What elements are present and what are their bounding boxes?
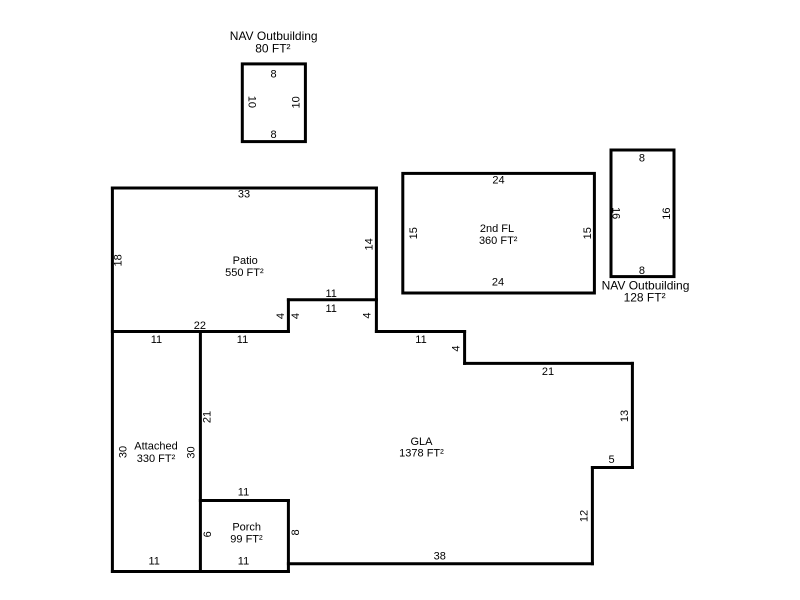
- svg-text:1378 FT²: 1378 FT²: [399, 448, 444, 460]
- svg-text:360 FT²: 360 FT²: [479, 235, 518, 247]
- svg-text:99 FT²: 99 FT²: [230, 534, 263, 546]
- svg-text:11: 11: [325, 288, 336, 300]
- svg-text:4: 4: [451, 345, 463, 351]
- svg-text:16: 16: [609, 207, 621, 219]
- svg-text:10: 10: [246, 96, 258, 108]
- svg-text:80 FT²: 80 FT²: [255, 41, 290, 55]
- svg-text:4: 4: [362, 313, 374, 319]
- svg-text:11: 11: [238, 556, 249, 568]
- svg-text:6: 6: [202, 531, 214, 537]
- svg-text:GLA: GLA: [410, 436, 433, 448]
- svg-text:24: 24: [492, 276, 504, 288]
- svg-text:Porch: Porch: [232, 522, 261, 534]
- svg-text:24: 24: [492, 175, 504, 187]
- svg-text:4: 4: [275, 313, 287, 319]
- svg-text:21: 21: [542, 366, 554, 378]
- svg-text:30: 30: [186, 446, 198, 458]
- svg-text:12: 12: [579, 510, 591, 522]
- svg-text:15: 15: [582, 227, 594, 239]
- svg-text:8: 8: [270, 68, 276, 80]
- svg-text:11: 11: [238, 487, 249, 499]
- svg-text:4: 4: [290, 313, 302, 319]
- svg-text:128 FT²: 128 FT²: [624, 290, 666, 304]
- svg-text:21: 21: [202, 411, 214, 423]
- svg-text:13: 13: [619, 410, 631, 422]
- svg-text:33: 33: [238, 189, 250, 201]
- svg-text:14: 14: [363, 238, 375, 250]
- svg-text:330 FT²: 330 FT²: [137, 453, 176, 465]
- svg-text:18: 18: [113, 254, 125, 266]
- svg-text:38: 38: [434, 551, 446, 563]
- svg-text:Patio: Patio: [233, 255, 258, 267]
- svg-text:15: 15: [408, 227, 420, 239]
- svg-text:5: 5: [609, 454, 615, 466]
- svg-text:11: 11: [148, 556, 159, 568]
- svg-text:30: 30: [118, 446, 130, 458]
- svg-text:11: 11: [237, 334, 248, 346]
- svg-text:11: 11: [151, 334, 162, 346]
- svg-text:8: 8: [639, 265, 645, 277]
- svg-text:550 FT²: 550 FT²: [225, 267, 264, 279]
- svg-text:Attached: Attached: [134, 441, 177, 453]
- svg-text:2nd FL: 2nd FL: [480, 223, 514, 235]
- svg-text:8: 8: [270, 129, 276, 141]
- svg-text:8: 8: [290, 529, 302, 535]
- svg-text:11: 11: [415, 334, 426, 346]
- svg-text:10: 10: [290, 96, 302, 108]
- svg-text:11: 11: [325, 303, 336, 315]
- svg-text:16: 16: [661, 207, 673, 219]
- svg-text:8: 8: [639, 153, 645, 165]
